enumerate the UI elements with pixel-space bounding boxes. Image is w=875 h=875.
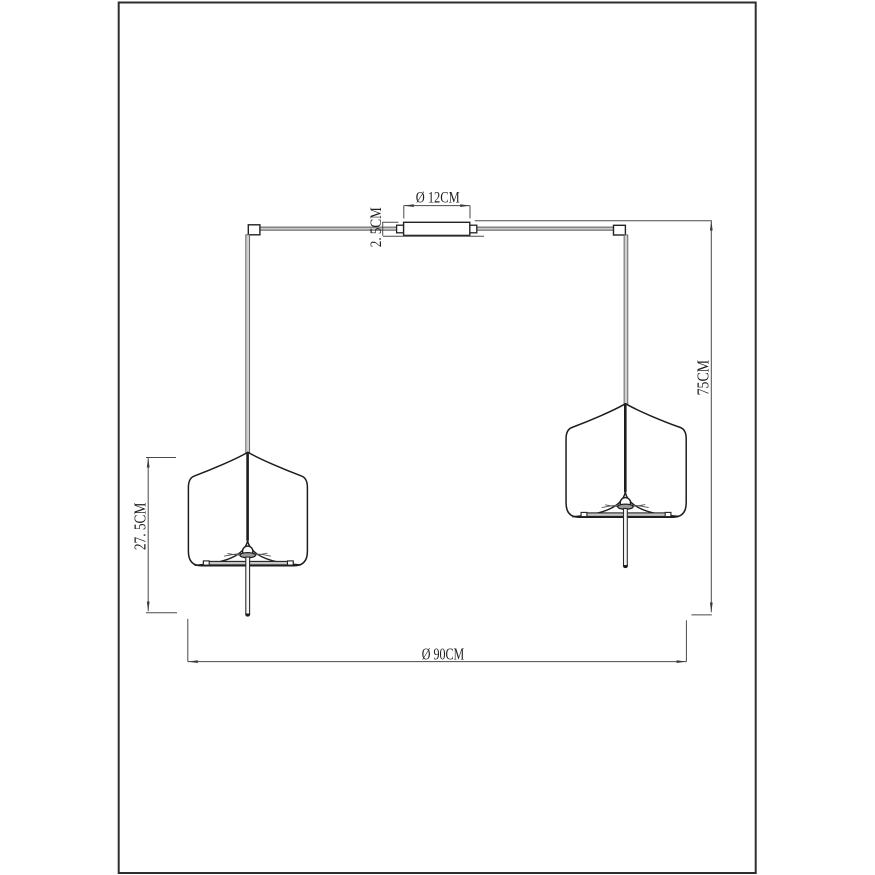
svg-text:Ø 90CM: Ø 90CM	[422, 644, 465, 663]
svg-text:27. 5CM: 27. 5CM	[131, 502, 150, 550]
svg-text:75CM: 75CM	[694, 360, 713, 396]
svg-text:2. 5CM: 2. 5CM	[368, 207, 385, 247]
svg-text:Ø 12CM: Ø 12CM	[416, 189, 460, 206]
